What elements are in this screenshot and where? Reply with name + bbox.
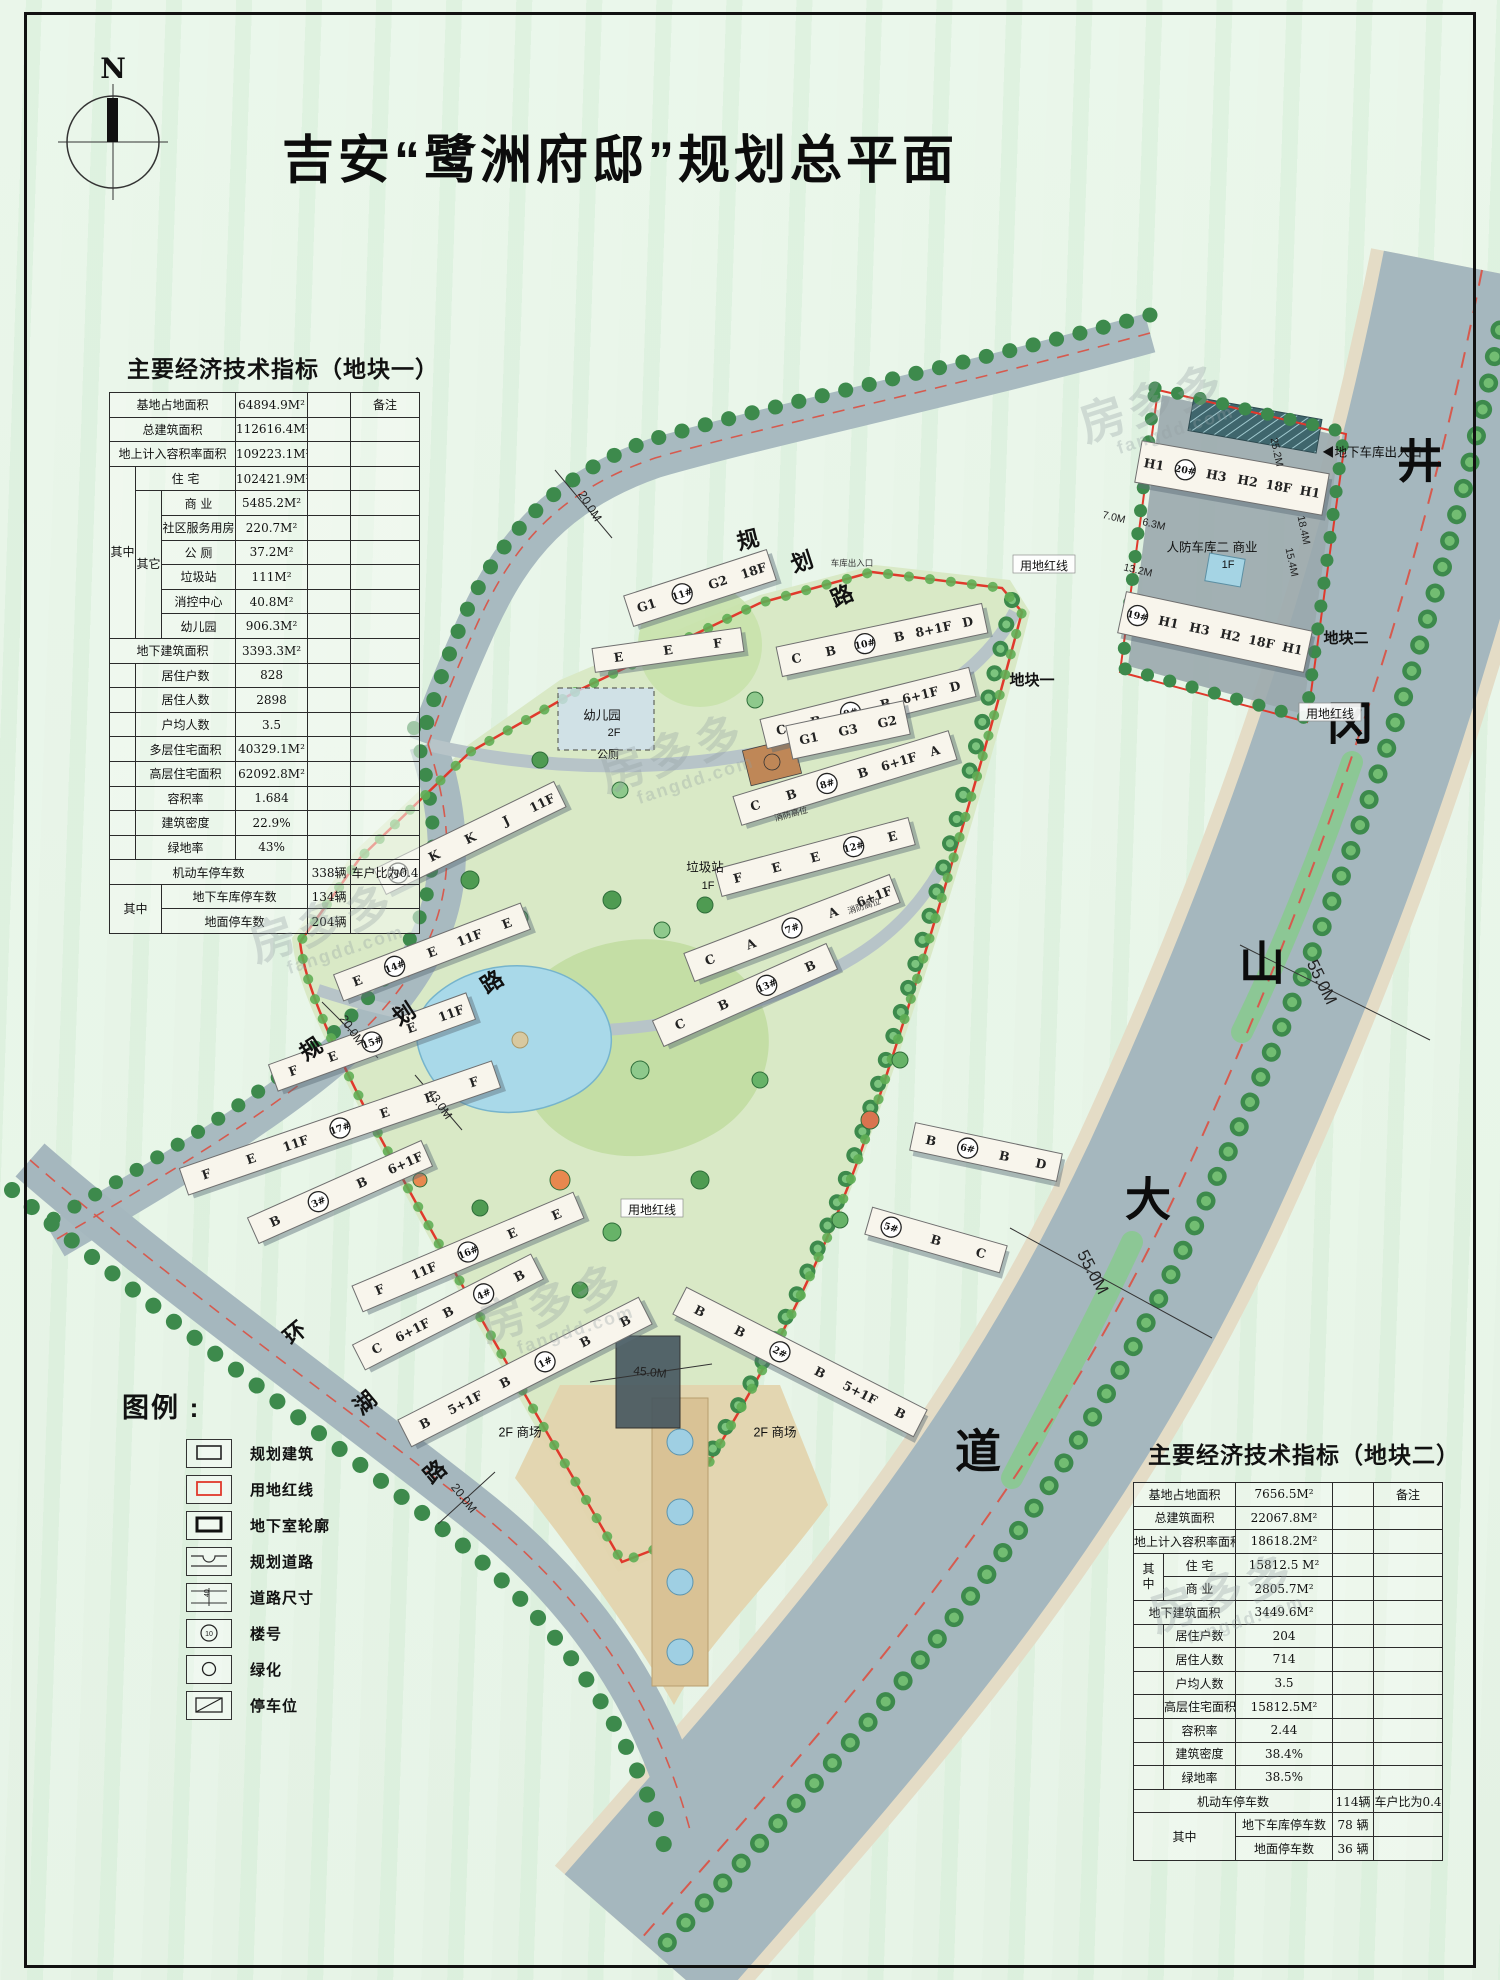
map-label: 垃圾站 — [686, 859, 724, 874]
map-label: 用地红线 — [1013, 555, 1075, 573]
map-label: 用地红线 — [1299, 703, 1361, 721]
legend-item-red-line: 用地红线 — [122, 1471, 352, 1507]
ratio-note: 车户比为0.4 — [351, 860, 420, 885]
svg-text:2F 商场: 2F 商场 — [753, 1424, 796, 1439]
legend-item-road-dimension: 40 道路尺寸 — [122, 1579, 352, 1615]
legend-item-building-number: 10 楼号 — [122, 1615, 352, 1651]
svg-text:用地红线: 用地红线 — [1306, 706, 1354, 721]
map-label: 地块一 — [1009, 671, 1054, 689]
svg-text:大: 大 — [1125, 1174, 1171, 1226]
legend-item-planned-building: 规划建筑 — [122, 1435, 352, 1471]
planned-building-icon — [186, 1439, 232, 1468]
map-label: 幼儿园 — [583, 708, 621, 722]
map-label: 1F — [702, 880, 715, 892]
building: 5#BC — [863, 1207, 1011, 1278]
svg-text:车库出入口: 车库出入口 — [831, 558, 874, 568]
legend-item-parking-space: 停车位 — [122, 1687, 352, 1723]
svg-text:垃圾站: 垃圾站 — [686, 859, 724, 874]
building: B6#BD — [909, 1123, 1066, 1187]
parking-space-icon — [186, 1691, 232, 1720]
table1-title: 主要经济技术指标（地块一） — [127, 350, 439, 384]
map-label: 2F — [608, 727, 621, 739]
svg-text:40: 40 — [204, 1589, 211, 1597]
svg-text:◀地下车库出入口: ◀地下车库出入口 — [1322, 444, 1422, 459]
plan-sheet: N B5+1FB1#BBBB2#B5+1FBB3#B6+1FC6+1FB4#B5… — [0, 0, 1500, 1980]
svg-text:1F: 1F — [1222, 559, 1235, 571]
map-label: 划 — [788, 547, 817, 578]
remark-header: 备注 — [351, 393, 420, 418]
svg-text:7.0M: 7.0M — [1101, 509, 1126, 526]
svg-text:地块一: 地块一 — [1009, 671, 1054, 689]
map-label: 井 — [1397, 436, 1443, 488]
indicator-table-plot1: 基地占地面积64894.9M²备注 总建筑面积112616.4M² 地上计入容积… — [109, 392, 420, 934]
map-label: 7.0M — [1101, 509, 1126, 526]
svg-text:井: 井 — [1397, 436, 1443, 488]
svg-text:用地红线: 用地红线 — [628, 1202, 676, 1217]
remark-header: 备注 — [1374, 1483, 1443, 1507]
map-label: 规 — [734, 525, 761, 555]
map-label: 用地红线 — [621, 1199, 683, 1217]
legend: 图例 : 规划建筑 用地红线 地下室轮廓 规划道路 40 道路尺寸 10 楼号 … — [122, 1386, 352, 1723]
map-label: 车库出入口 — [831, 558, 874, 568]
legend-item-planned-road: 规划道路 — [122, 1543, 352, 1579]
svg-text:2F: 2F — [608, 727, 621, 739]
road-dimension-icon: 40 — [186, 1583, 232, 1612]
svg-text:规: 规 — [734, 525, 761, 555]
building-number-icon: 10 — [186, 1619, 232, 1648]
map-label: 道 — [955, 1426, 1001, 1478]
legend-item-basement-outline: 地下室轮廓 — [122, 1507, 352, 1543]
page-title: 吉安“鹭洲府邸”规划总平面 — [250, 118, 990, 193]
svg-text:幼儿园: 幼儿园 — [583, 708, 621, 722]
map-label: 山 — [1239, 938, 1285, 990]
row-value: 64894.9M² — [236, 393, 308, 418]
map-label: 1F — [1222, 559, 1235, 571]
svg-text:公厕: 公厕 — [597, 748, 619, 761]
planned-road-icon — [186, 1547, 232, 1576]
map-label: 地块二 — [1323, 629, 1368, 647]
svg-text:划: 划 — [788, 547, 817, 578]
map-label: ◀地下车库出入口 — [1322, 444, 1422, 459]
north-label: N — [100, 52, 126, 85]
svg-text:用地红线: 用地红线 — [1020, 558, 1068, 573]
svg-text:道: 道 — [955, 1426, 1001, 1478]
legend-title: 图例 : — [122, 1386, 352, 1425]
map-label: 2F 商场 — [498, 1424, 541, 1439]
lake-island — [512, 1032, 528, 1048]
indicator-table-plot2: 基地占地面积7656.5M²备注 总建筑面积22067.8M² 地上计入容积率面… — [1133, 1482, 1443, 1861]
svg-text:1F: 1F — [702, 880, 715, 892]
map-label: 公厕 — [597, 748, 619, 761]
red-line-icon — [186, 1475, 232, 1504]
svg-text:10: 10 — [205, 1631, 213, 1638]
map-label: 2F 商场 — [753, 1424, 796, 1439]
entrance-gate — [616, 1336, 680, 1428]
svg-text:人防车库二 商业: 人防车库二 商业 — [1167, 539, 1258, 554]
row-label: 基地占地面积 — [110, 393, 236, 418]
ratio-note: 车户比为0.4 — [1374, 1789, 1443, 1813]
table2-title: 主要经济技术指标（地块二） — [1148, 1436, 1460, 1470]
svg-text:地块二: 地块二 — [1323, 629, 1368, 647]
basement-outline-icon — [186, 1511, 232, 1540]
greenery-icon — [186, 1655, 232, 1684]
map-label: 人防车库二 商业 — [1167, 539, 1258, 554]
svg-text:山: 山 — [1239, 938, 1285, 990]
svg-text:2F 商场: 2F 商场 — [498, 1424, 541, 1439]
map-label: 大 — [1125, 1174, 1171, 1226]
legend-item-greenery: 绿化 — [122, 1651, 352, 1687]
north-arrow: N — [58, 52, 168, 200]
